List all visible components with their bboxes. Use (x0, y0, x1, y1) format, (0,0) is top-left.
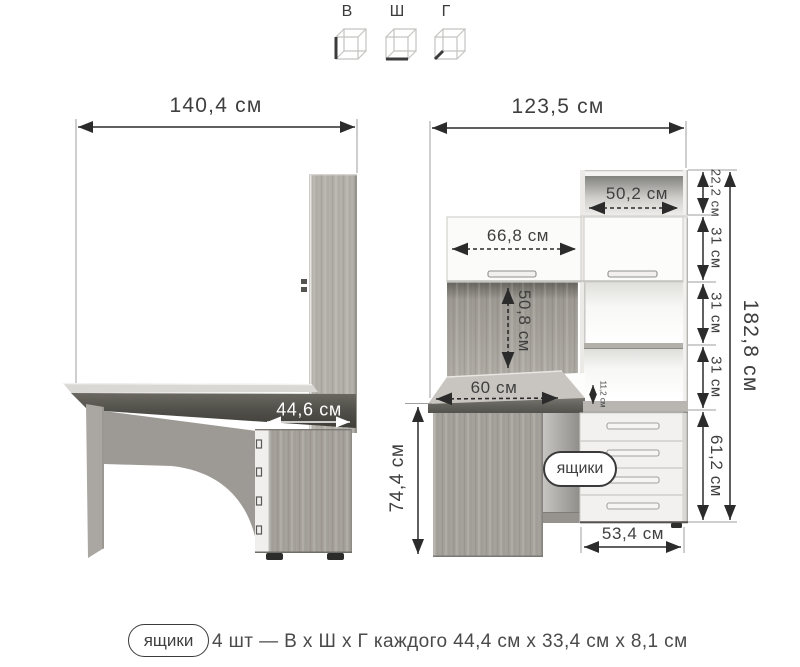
dim-desktop-gap: 11,2 см (599, 381, 608, 408)
legend-badge: ящики (128, 624, 209, 657)
dim-segment-1: 22,2 см (709, 169, 724, 218)
door-handle (608, 271, 657, 277)
dim-segment-4: 31 см (708, 356, 725, 398)
diagram-artwork (0, 0, 800, 667)
dim-segment-3: 31 см (708, 292, 725, 334)
dim-drawer-section-height: 61,2 см (706, 435, 726, 497)
dim-overall-height: 182,8 см (738, 300, 762, 393)
front-view-plinth (543, 512, 583, 523)
front-view-hutch (580, 170, 688, 411)
side-view-drawing (63, 174, 357, 560)
dim-drawer-unit-width: 53,4 см (602, 524, 664, 544)
legend-text: 4 шт — В х Ш х Г каждого 44,4 см х 33,4 … (212, 631, 688, 653)
drawers-callout-text: ящики (557, 460, 604, 478)
width-key-label: Ш (390, 3, 405, 21)
depth-cube-icon (432, 23, 468, 65)
dim-door-width: 66,8 см (487, 226, 549, 246)
dim-back-panel-height: 50,8 см (514, 290, 534, 352)
dim-top-shelf-width: 50,2 см (606, 184, 668, 204)
drawer-handle (607, 450, 659, 456)
drawer-handle (607, 503, 659, 509)
dim-desktop-depth: 60 см (471, 378, 518, 398)
dim-side-overall-width: 140,4 см (170, 94, 263, 118)
side-view-left-leg (86, 404, 104, 558)
dim-side-desk-depth: 44,6 см (276, 400, 342, 421)
drawer-handle (607, 477, 659, 483)
door-handle (488, 271, 536, 277)
depth-key-label: Г (442, 3, 451, 21)
furniture-dimension-diagram: В Ш Г 140,4 см 44,6 см 123,5 см 50,2 см … (0, 0, 800, 667)
legend-badge-text: ящики (144, 631, 194, 651)
side-view-drawer-unit (255, 429, 352, 560)
dim-segment-2: 31 см (708, 227, 725, 269)
dim-desk-height: 74,4 см (387, 443, 409, 512)
height-key-label: В (342, 3, 353, 21)
drawers-callout-badge: ящики (543, 451, 617, 487)
height-cube-icon (333, 23, 369, 65)
drawer-handle (607, 423, 659, 429)
front-view-drawing (428, 170, 688, 557)
width-cube-icon (383, 23, 419, 65)
front-view-pedestal (433, 413, 543, 557)
dim-front-overall-width: 123,5 см (512, 95, 605, 119)
side-view-modesty-panel (104, 411, 257, 546)
